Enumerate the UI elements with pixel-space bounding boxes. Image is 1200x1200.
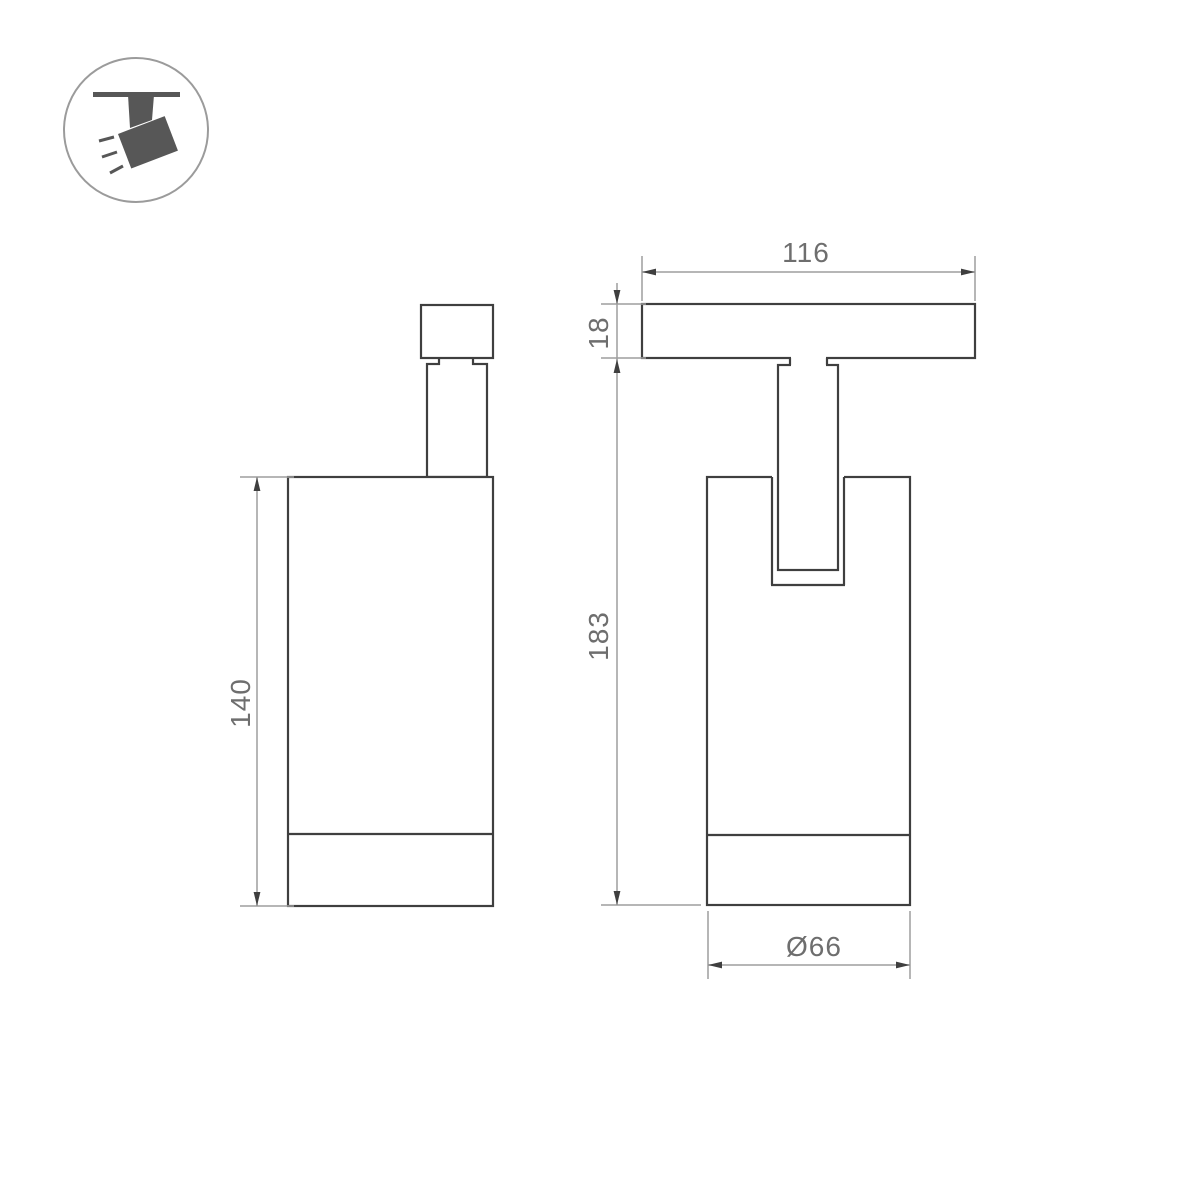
- icon-ray-3: [110, 166, 123, 173]
- dim66-label: Ø66: [786, 931, 842, 962]
- icon-ray-1: [99, 137, 114, 141]
- dim66-arrow-right: [896, 962, 910, 969]
- dimension-track-thickness: 18: [583, 283, 646, 905]
- side-view-track-connector: [421, 305, 493, 358]
- dimension-track-width: 116: [642, 237, 975, 301]
- icon-ray-2: [102, 152, 117, 157]
- dim18-arrow-down: [614, 290, 621, 304]
- side-view: [288, 305, 493, 906]
- front-view: [642, 304, 975, 905]
- dim183-label: 183: [583, 611, 614, 661]
- side-view-body: [288, 477, 493, 906]
- technical-drawing-canvas: 140 116 18 183: [0, 0, 1200, 1200]
- dim18-label: 18: [583, 316, 614, 349]
- dim140-arrow-up: [254, 477, 261, 491]
- dimension-body-height: 140: [225, 477, 294, 906]
- dim140-label: 140: [225, 678, 256, 728]
- side-view-stem: [427, 364, 487, 477]
- track-spotlight-icon: [64, 58, 208, 202]
- icon-spotlight-rect: [118, 116, 178, 168]
- dim140-arrow-down: [254, 892, 261, 906]
- dim18-arrow-up: [614, 359, 621, 373]
- front-view-neck-cover: [791, 356, 826, 367]
- dim183-arrow-down: [614, 891, 621, 905]
- dim116-arrow-right: [961, 269, 975, 276]
- dimension-body-diameter: Ø66: [708, 911, 910, 979]
- side-view-neck-cover: [440, 361, 472, 367]
- dimension-overall-height: 183: [583, 611, 701, 905]
- icon-spotlight-body: [118, 116, 178, 168]
- dim116-arrow-left: [642, 269, 656, 276]
- front-view-track-plate: [642, 304, 975, 358]
- dim66-arrow-left: [708, 962, 722, 969]
- front-view-stem: [778, 365, 838, 570]
- drawing-svg: 140 116 18 183: [0, 0, 1200, 1200]
- icon-light-rays: [99, 137, 123, 173]
- dim116-label: 116: [782, 237, 830, 268]
